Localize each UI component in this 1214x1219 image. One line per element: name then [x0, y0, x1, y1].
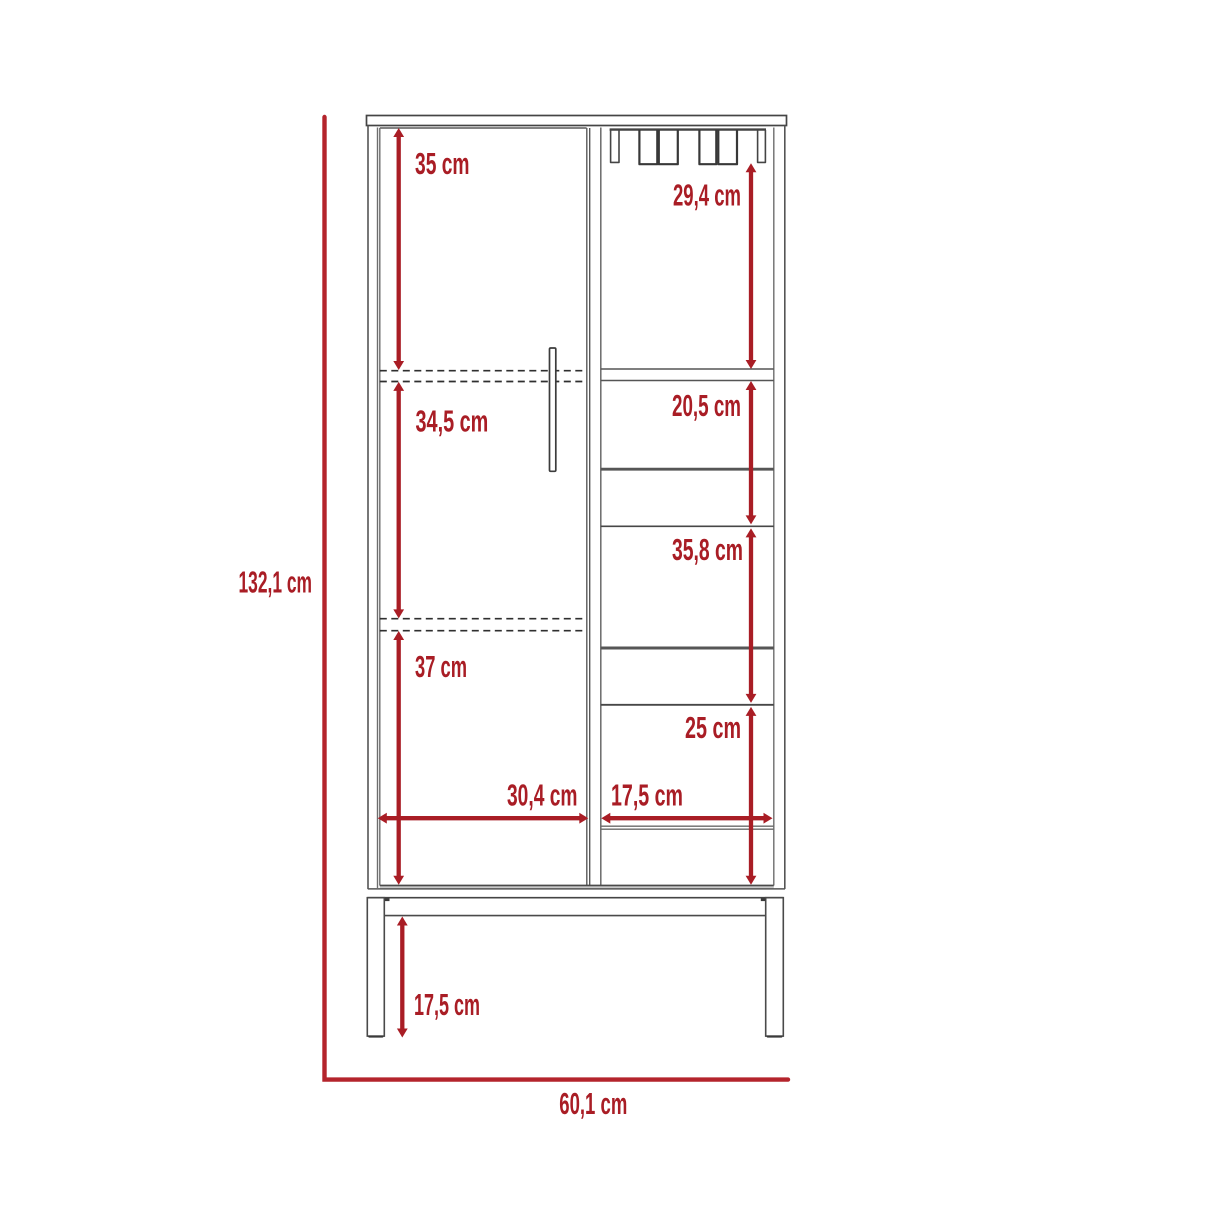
svg-text:29,4 cm: 29,4 cm [673, 179, 741, 213]
svg-text:132,1 cm: 132,1 cm [239, 566, 313, 600]
svg-text:20,5 cm: 20,5 cm [672, 389, 741, 423]
svg-text:60,1 cm: 60,1 cm [559, 1087, 627, 1121]
svg-text:30,4 cm: 30,4 cm [507, 779, 578, 813]
svg-text:34,5 cm: 34,5 cm [416, 405, 489, 439]
svg-text:37 cm: 37 cm [415, 650, 467, 684]
svg-text:17,5 cm: 17,5 cm [414, 988, 480, 1022]
svg-text:25 cm: 25 cm [685, 711, 741, 745]
svg-text:35,8 cm: 35,8 cm [672, 533, 743, 567]
svg-text:35 cm: 35 cm [415, 147, 470, 181]
svg-text:17,5 cm: 17,5 cm [611, 779, 683, 813]
